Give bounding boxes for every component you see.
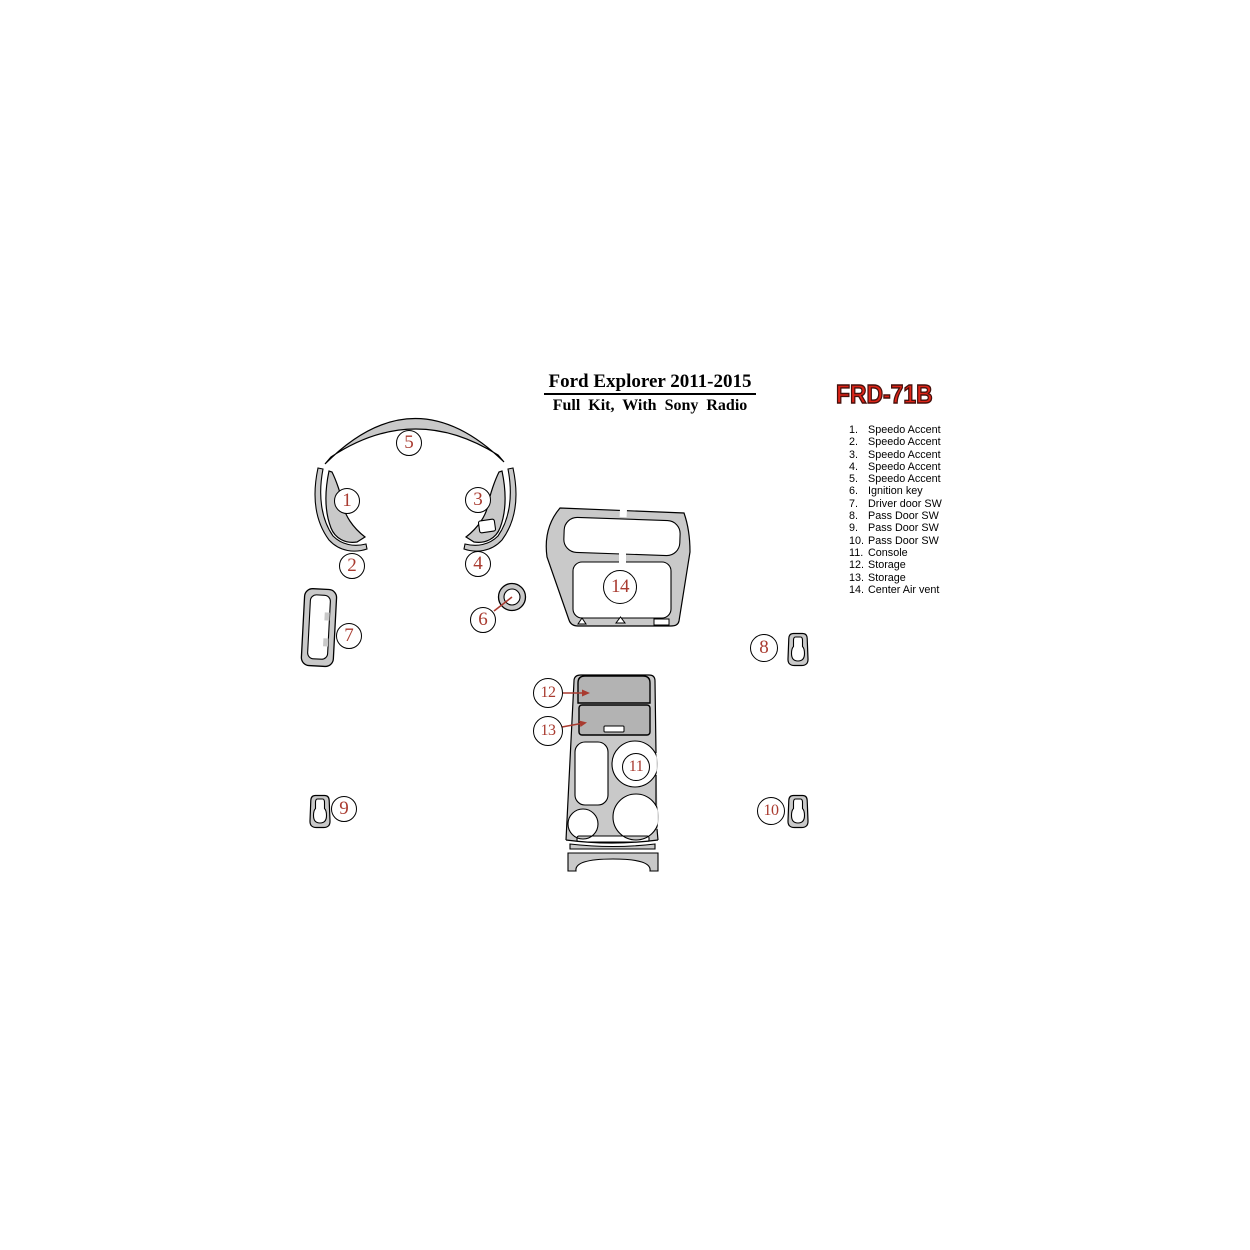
callout-5: 5 xyxy=(396,430,422,456)
part-8-pass-door-switch xyxy=(788,634,808,666)
callout-1: 1 xyxy=(334,488,360,514)
part-9-pass-door-switch xyxy=(310,796,330,828)
part-14-center-air-vent xyxy=(546,502,690,626)
part-3-cutout xyxy=(478,519,496,533)
callout-9: 9 xyxy=(331,796,357,822)
callout-11: 11 xyxy=(622,753,650,781)
callout-10: 10 xyxy=(757,797,785,825)
part-12-storage-panel xyxy=(578,676,650,703)
callout-13: 13 xyxy=(533,716,563,746)
page: Ford Explorer 2011-2015 Full Kit, With S… xyxy=(0,0,1250,1250)
part-11-console-strip xyxy=(570,844,655,849)
callout-6: 6 xyxy=(470,607,496,633)
callout-7: 7 xyxy=(336,623,362,649)
callout-8: 8 xyxy=(750,634,778,662)
part-13-handle xyxy=(604,726,624,732)
dash-kit-diagram xyxy=(0,0,1250,1250)
part-7-driver-door-switch xyxy=(301,588,337,667)
part-11-console-base xyxy=(568,853,658,871)
callout-12: 12 xyxy=(533,678,563,708)
part-10-pass-door-switch xyxy=(788,796,808,828)
callout-3: 3 xyxy=(465,487,491,513)
callout-2: 2 xyxy=(339,553,365,579)
callout-4: 4 xyxy=(465,551,491,577)
callout-14: 14 xyxy=(603,570,637,604)
